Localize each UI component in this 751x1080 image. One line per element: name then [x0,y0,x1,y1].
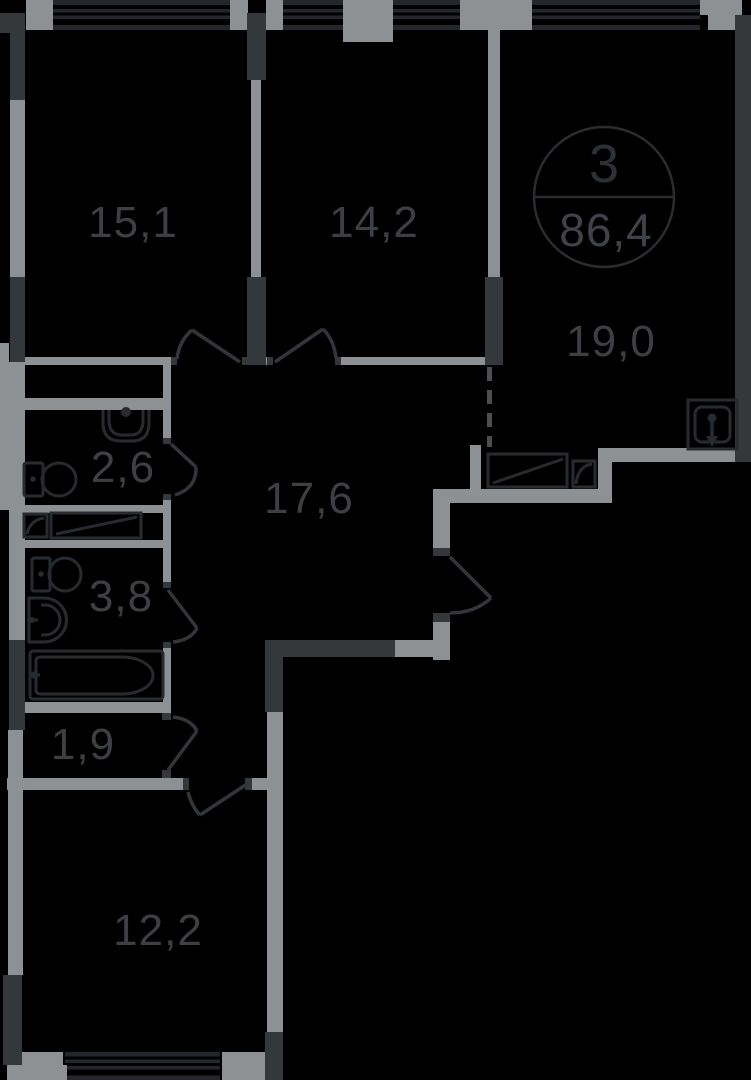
door-jamb [163,494,171,500]
door-jamb [163,438,171,444]
door-arc-room-14-2 [275,329,336,362]
wall-segment-dark [10,13,25,100]
wall-segment-light [267,712,283,1032]
wall-pier [22,1052,63,1065]
window-top-2 [283,0,343,30]
door-arc-entrance [450,557,491,613]
wall-segment-light [25,398,163,410]
wall-segment-light [163,494,171,548]
wall-segment-dark [265,1032,283,1080]
door-jamb [335,357,341,365]
walls-light [0,0,742,1080]
wall-pier [708,15,735,30]
wall-pier [343,0,393,42]
door-arc-room-15-1 [177,330,240,362]
floor-plan: 15,1 14,2 19,0 2,6 17,6 3,8 1,9 12,2 3 8… [0,0,751,1080]
room-label-14-2: 14,2 [329,198,419,247]
window-bottom [65,1052,220,1080]
wall-segment-light [10,100,25,277]
room-label-15-1: 15,1 [88,198,178,247]
wall-segment-dark [265,640,283,712]
room-label-19-0: 19,0 [566,317,656,366]
door-arc-bathroom-3-8 [168,590,197,642]
window-top-3 [393,0,460,30]
wall-segment-dark [3,975,22,1065]
door-arc-room-12-2 [188,784,247,815]
wall-segment-light [25,357,177,365]
toilet-icon [24,463,76,496]
wall-pier [460,0,532,30]
wall-segment-dark [485,277,503,365]
badge-room-count: 3 [589,134,619,194]
wall-segment-dark [735,15,751,462]
toilet-icon [32,558,81,591]
wall-segment-light [488,28,500,277]
wall-segment-dark [9,640,25,730]
door-jamb [163,642,171,648]
wall-pier [222,1052,267,1080]
room-labels: 15,1 14,2 19,0 2,6 17,6 3,8 1,9 12,2 [51,198,656,955]
wall-segment-light [7,778,183,790]
room-label-2-6: 2,6 [91,443,155,492]
wall-pier [700,0,742,15]
wall-segment-light [9,362,25,640]
door-jamb [267,357,273,365]
wall-segment-light [25,702,171,713]
kitchen-hob-icon [573,461,595,487]
door-arc-storage-1-9 [168,717,197,770]
washing-machine-icon [24,514,47,537]
kitchen-counter-icon [488,454,567,487]
wall-segment-light [0,343,9,510]
wall-segment-light [252,778,267,790]
door-arc-bathroom-2-6 [171,444,196,495]
kitchen-sink-icon [688,400,737,449]
wall-pier [230,0,248,30]
wall-segment-dark [265,640,395,657]
round-sink-icon [27,598,67,642]
badge-total-area: 86,4 [559,204,653,256]
counter-icon [51,513,141,538]
wall-segment-light [335,357,485,365]
wall-segment-light [25,540,171,548]
wall-segment-light [251,80,261,277]
door-jamb [242,357,248,365]
door-jamb [162,713,171,720]
room-label-3-8: 3,8 [89,572,153,621]
wall-pier [266,0,283,30]
room-label-12-2: 12,2 [113,906,203,955]
wall-segment-dark [247,277,266,365]
wall-segment-dark [10,277,25,362]
wall-segment-light [598,448,612,503]
room-label-1-9: 1,9 [51,720,115,769]
wall-segment-light [433,622,450,660]
door-jamb [163,582,171,588]
wall-segment-light [163,365,171,444]
door-jamb [183,778,189,790]
door-jamb [162,770,171,778]
apartment-badge: 3 86,4 [534,127,674,267]
wall-pier [7,1065,67,1080]
door-jamb [433,548,450,556]
bathtub-icon [29,651,163,699]
doors [168,329,491,815]
floor-plan-canvas: 15,1 14,2 19,0 2,6 17,6 3,8 1,9 12,2 3 8… [0,0,751,1080]
sink-icon [103,407,149,441]
room-label-17-6: 17,6 [264,474,354,523]
wall-pier [470,445,481,489]
wall-pier [26,0,53,30]
door-jamb [433,613,450,622]
window-top-4 [532,0,700,30]
window-top-1 [53,0,230,30]
wall-segment-light [8,730,23,975]
wall-segment-light [433,489,612,503]
wall-segment-dark [247,13,266,80]
